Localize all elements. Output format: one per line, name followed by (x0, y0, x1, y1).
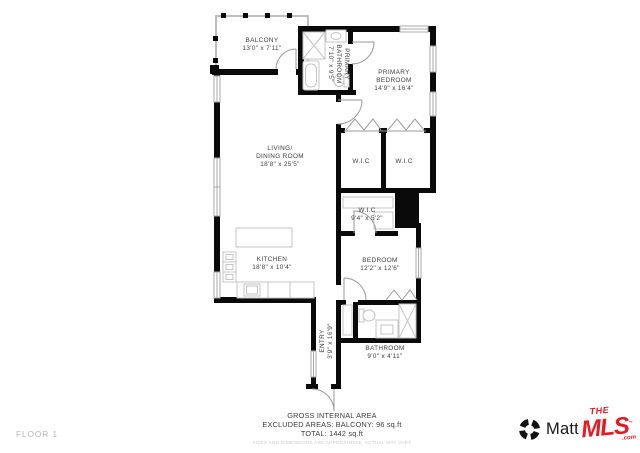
entry-label: ENTRY 3'9" x 16'9" (319, 323, 334, 359)
kitchen-label: KITCHEN 18'8" x 10'4" (252, 256, 292, 271)
primary-bedroom-label: PRIMARY BEDROOM 14'9" x 16'4" (374, 69, 414, 92)
svg-text:KITCHEN: KITCHEN (257, 256, 288, 263)
svg-text:7'10" x 9'5": 7'10" x 9'5" (327, 46, 334, 82)
svg-text:PRIMARY: PRIMARY (378, 69, 410, 76)
svg-text:BALCONY: BALCONY (246, 37, 279, 44)
excluded-areas: EXCLUDED AREAS: BALCONY: 96 sq.ft (262, 420, 401, 429)
svg-text:LIVING/: LIVING/ (267, 145, 292, 152)
living-dining-label: LIVING/ DINING ROOM 18'8" x 25'5" (256, 145, 304, 168)
gross-internal-area: GROSS INTERNAL AREA (287, 411, 377, 420)
svg-text:13'0" x 7'11": 13'0" x 7'11" (242, 45, 281, 52)
svg-text:BATHROOM: BATHROOM (365, 345, 404, 352)
themls-logo: THE MLS™ .com (576, 401, 640, 451)
svg-text:9'4" x 5'2": 9'4" x 5'2" (351, 215, 383, 222)
svg-text:3'9" x 16'9": 3'9" x 16'9" (327, 323, 334, 359)
matterport-icon (518, 418, 541, 441)
bedroom-label: BEDROOM 12'2" x 12'6" (360, 257, 400, 272)
area-summary: GROSS INTERNAL AREA EXCLUDED AREAS: BALC… (252, 411, 411, 445)
total-area: TOTAL: 1442 sq.ft (301, 429, 363, 438)
floorplan-drawing: BALCONY 13'0" x 7'11" PRIMARY BATHROOM 7… (0, 0, 640, 453)
wic2-label: W.I.C (395, 158, 412, 165)
bathroom-fixtures (359, 304, 416, 338)
svg-text:BEDROOM: BEDROOM (376, 77, 411, 84)
svg-text:DINING ROOM: DINING ROOM (256, 153, 304, 160)
floorplan-page: { "floor_label": "FLOOR 1", "rooms": { "… (0, 0, 640, 453)
kitchen-fixtures (223, 228, 314, 298)
svg-text:12'2" x 12'6": 12'2" x 12'6" (360, 265, 400, 272)
svg-text:BATHROOM: BATHROOM (335, 44, 342, 83)
room-labels: BALCONY 13'0" x 7'11" PRIMARY BATHROOM 7… (242, 37, 413, 360)
svg-text:18'8" x 25'5": 18'8" x 25'5" (260, 161, 300, 168)
branding-area: Matterport THE MLS™ .com (518, 401, 640, 449)
svg-text:W.I.C: W.I.C (358, 207, 375, 214)
themls-tm: ™ (628, 420, 632, 425)
svg-text:14'9" x 16'4": 14'9" x 16'4" (374, 85, 414, 92)
wic3-label: W.I.C 9'4" x 5'2" (351, 207, 383, 222)
svg-text:PRIMARY: PRIMARY (343, 48, 350, 80)
svg-text:18'8" x 10'4": 18'8" x 10'4" (252, 264, 292, 271)
svg-text:ENTRY: ENTRY (319, 329, 326, 353)
wic1-label: W.I.C (352, 158, 369, 165)
svg-text:9'0" x 4'11": 9'0" x 4'11" (367, 353, 402, 360)
size-disclaimer: SIZES AND DIMENSIONS ARE APPROXIMATE, AC… (252, 440, 411, 445)
svg-text:BEDROOM: BEDROOM (362, 257, 397, 264)
balcony-label: BALCONY 13'0" x 7'11" (242, 37, 281, 52)
floor-label: FLOOR 1 (16, 430, 58, 439)
bathroom-label: BATHROOM 9'0" x 4'11" (365, 345, 404, 360)
primary-bathroom-label: PRIMARY BATHROOM 7'10" x 9'5" (327, 44, 350, 83)
